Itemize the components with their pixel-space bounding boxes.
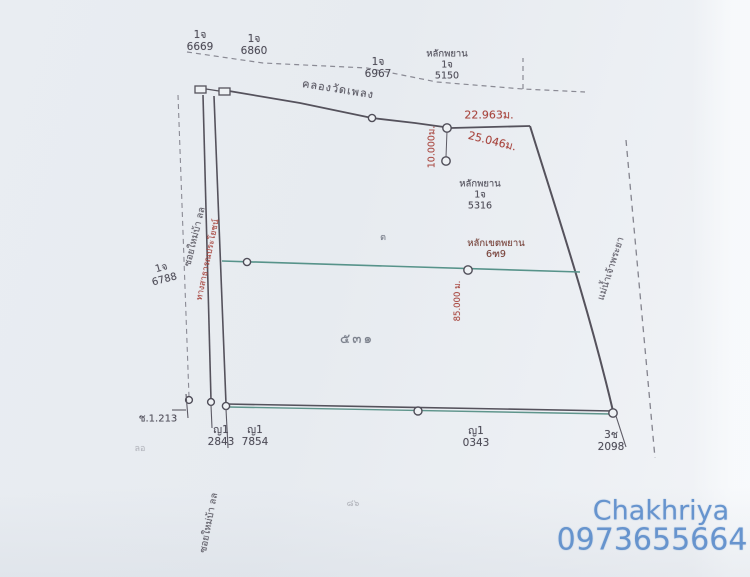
marker-label-6860: 1จ 6860	[241, 33, 268, 57]
marker-label-6967: 1จ 6967	[365, 56, 392, 80]
marker-type: 1จ	[365, 56, 392, 68]
ref-point-label: ช.1.213	[139, 413, 178, 425]
measurement-middle-line: 85.000 ม.	[454, 281, 464, 322]
bottom-marker-0343: ญ1 0343	[463, 425, 490, 449]
marker-type: 3ช	[598, 429, 625, 441]
marker-type: ญ1	[242, 424, 269, 436]
marker-number: 2843	[208, 436, 235, 448]
survey-drawing	[0, 0, 750, 577]
parcel-number: ๕๓๑	[340, 332, 374, 348]
small-note: ต	[380, 233, 386, 243]
marker-type: 1จ	[241, 33, 268, 45]
boundary-stone-label: หลักเขตพยาน 6ฑ9	[467, 239, 524, 261]
bottom-tick-lines	[172, 394, 626, 448]
witness-number: 5316	[459, 201, 501, 212]
faint-mark-left: ลอ	[135, 444, 146, 454]
marker-number: 0343	[463, 437, 490, 449]
faint-mark-bottom: ๘๖	[347, 499, 360, 509]
marker-type: 1จ	[187, 29, 214, 41]
marker-number: 7854	[242, 436, 269, 448]
parcel-boundary	[226, 91, 613, 414]
witness-number: 5150	[426, 71, 468, 82]
survey-stone-squares	[195, 86, 230, 95]
tie-line	[446, 131, 447, 157]
scanned-survey-document: 1จ 6669 1จ 6860 1จ 6967 หลักพยาน 1จ 5150…	[0, 0, 750, 577]
bottom-marker-2843: ญ1 2843	[208, 424, 235, 448]
watermark-phone: 0973655664	[557, 523, 748, 558]
witness-marker-mid-label: หลักพยาน 1จ 5316	[459, 180, 501, 213]
bottom-marker-2098: 3ช 2098	[598, 429, 625, 453]
boundary-stone-number: 6ฑ9	[467, 250, 524, 261]
marker-type: ญ1	[463, 425, 490, 437]
marker-number: 6669	[187, 41, 214, 53]
marker-number: 2098	[598, 441, 625, 453]
marker-label-6669: 1จ 6669	[187, 29, 214, 53]
bottom-marker-7854: ญ1 7854	[242, 424, 269, 448]
right-dashed-line	[626, 140, 655, 458]
middle-division-line	[222, 261, 580, 272]
measurement-vertical-tie: 10.000ม.	[428, 126, 439, 169]
witness-marker-top-label: หลักพยาน 1จ 5150	[426, 50, 468, 83]
marker-number: 6860	[241, 45, 268, 57]
measurement-top-edge: 22.963ม.	[464, 110, 513, 123]
marker-number: 6967	[365, 68, 392, 80]
marker-type: ญ1	[208, 424, 235, 436]
